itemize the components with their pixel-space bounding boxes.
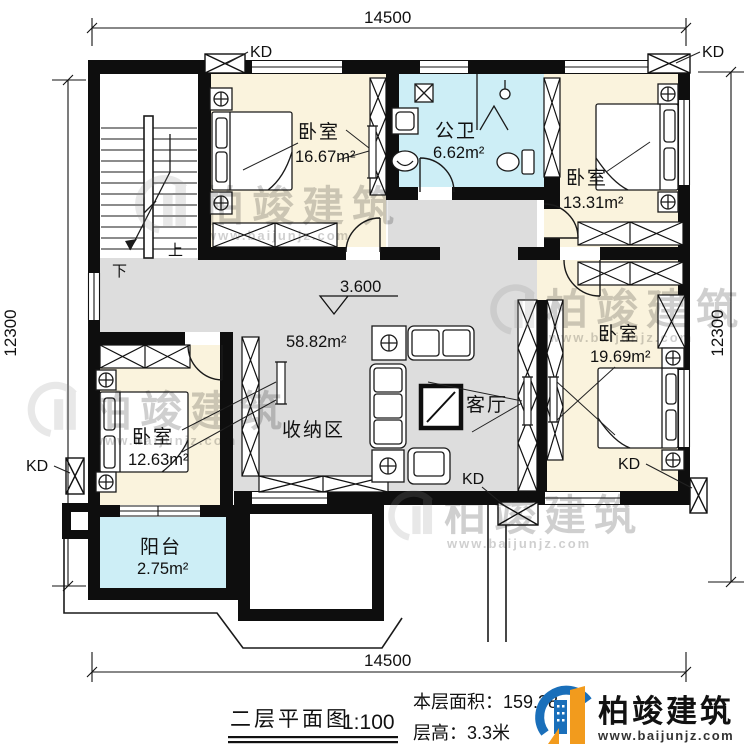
watermark-url: www.baijunjz.com bbox=[205, 228, 350, 243]
plan-scale: 1:100 bbox=[342, 711, 395, 734]
dim-top: 14500 bbox=[364, 8, 411, 27]
living-name: 客厅 bbox=[466, 394, 508, 416]
lower-roof-square bbox=[238, 502, 384, 621]
watermark-text: 柏竣建筑 bbox=[546, 286, 746, 333]
floorplan-drawing: 上 下 bbox=[0, 0, 750, 754]
watermark-text: 柏竣建筑 bbox=[202, 183, 402, 230]
living-area: 58.82m² bbox=[286, 333, 347, 351]
coffee-table bbox=[421, 386, 461, 428]
plan-title: 二层平面图 bbox=[230, 708, 350, 731]
watermark-url: www.baijunjz.com bbox=[446, 536, 591, 551]
bedroom3-area: 19.69m² bbox=[590, 348, 651, 366]
bathroom-name: 公卫 bbox=[435, 121, 477, 142]
dim-bottom: 14500 bbox=[364, 651, 411, 670]
stair-down-label: 下 bbox=[112, 263, 127, 280]
toilet-tank bbox=[522, 150, 534, 174]
bathroom-area: 6.62m² bbox=[433, 144, 485, 162]
kd-label-bottom: KD bbox=[462, 471, 484, 488]
stair-arrow-head bbox=[125, 239, 137, 250]
shower-head-icon bbox=[500, 89, 510, 99]
logo-icon bbox=[540, 686, 588, 744]
title-underline-1 bbox=[228, 736, 398, 738]
level-mark-value: 3.600 bbox=[340, 278, 381, 296]
storage-name: 收纳区 bbox=[282, 419, 345, 441]
company-logo: 柏竣建筑 www.baijunjz.com bbox=[540, 686, 735, 744]
floor-height-label: 层高：3.3米 bbox=[413, 723, 510, 743]
title-underline-2 bbox=[228, 741, 398, 743]
logo-name: 柏竣建筑 bbox=[598, 694, 734, 729]
bedroom1-name: 卧室 bbox=[298, 121, 340, 143]
bedroom2-area: 13.31m² bbox=[563, 194, 624, 212]
title-block: 二层平面图 1:100 本层面积：159.38 层高：3.3米 bbox=[228, 692, 558, 743]
watermark-url: www.baijunjz.com bbox=[548, 330, 693, 345]
logo-url: www.baijunjz.com bbox=[597, 728, 734, 743]
watermark-text: 柏竣建筑 bbox=[444, 492, 644, 539]
bedroom1-area: 16.67m² bbox=[295, 148, 356, 166]
bedroom2-name: 卧室 bbox=[566, 167, 608, 189]
dim-left: 12300 bbox=[1, 309, 20, 356]
watermark-url: www.baijunjz.com bbox=[92, 433, 237, 448]
toilet-bowl bbox=[497, 153, 519, 171]
kd-label-left: KD bbox=[26, 458, 48, 475]
kd-label-top-right: KD bbox=[702, 44, 724, 61]
watermark-text: 柏竣建筑 bbox=[90, 388, 290, 435]
bedroom4-area: 12.63m² bbox=[128, 451, 189, 469]
balcony-name: 阳台 bbox=[140, 536, 182, 558]
kd-label-bedroom3: KD bbox=[618, 456, 640, 473]
floorplan-page: 上 下 bbox=[0, 0, 750, 754]
balcony-area: 2.75m² bbox=[137, 560, 189, 578]
basin-icon bbox=[392, 151, 418, 171]
kd-label-top-left: KD bbox=[250, 44, 272, 61]
watermark-bottom: 柏竣建筑 www.baijunjz.com bbox=[391, 492, 644, 551]
stair-up-label: 上 bbox=[168, 242, 183, 259]
